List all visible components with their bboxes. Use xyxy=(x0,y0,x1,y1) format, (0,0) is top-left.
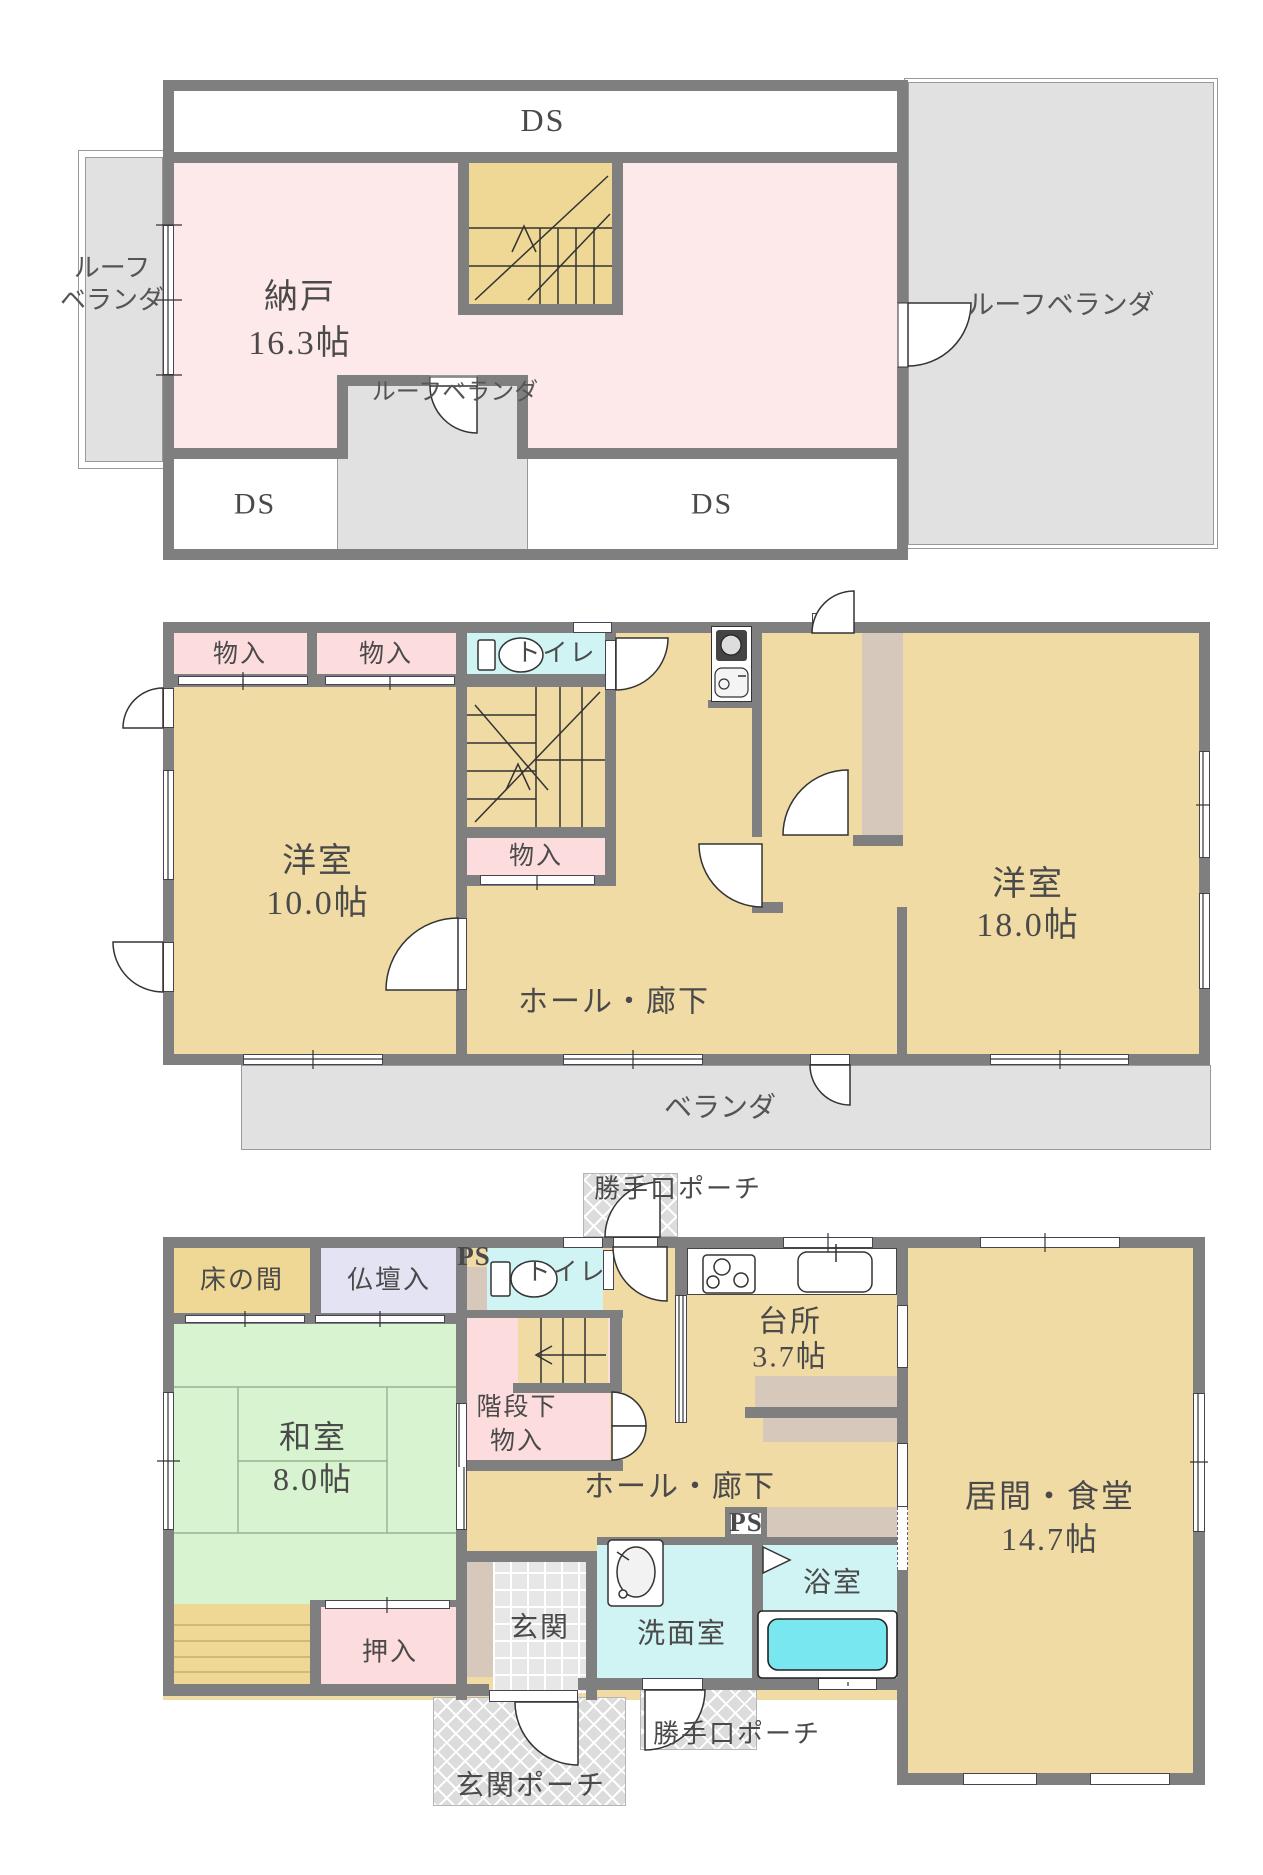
stairs-1f xyxy=(518,1318,608,1383)
bath-label: 浴室 xyxy=(803,1568,863,1597)
wall xyxy=(456,633,467,1054)
sliding-door xyxy=(325,676,455,685)
duct-space-top-label: DS xyxy=(521,104,566,138)
senmen-room xyxy=(597,1545,752,1678)
shoe-cabinet xyxy=(467,1562,493,1677)
wall xyxy=(752,1545,763,1678)
opening xyxy=(897,1305,908,1368)
opening-dashed xyxy=(897,1507,908,1570)
hall-1f-label: ホール・廊下 xyxy=(584,1471,776,1503)
sliding-door xyxy=(185,1315,305,1323)
veranda-2f-label: ベランダ xyxy=(664,1092,776,1121)
roof-veranda-middle-label: ルーフベランダ xyxy=(372,379,539,404)
toilet-1f-label: トイレ xyxy=(525,1260,606,1286)
window xyxy=(573,622,612,633)
wall xyxy=(745,1407,908,1418)
door-leaf xyxy=(163,942,174,992)
window xyxy=(1193,1393,1205,1532)
nando-size-label: 16.3帖 xyxy=(248,326,352,362)
wall xyxy=(163,152,908,163)
door-leaf xyxy=(752,844,762,907)
counter-band-c xyxy=(767,1507,898,1540)
room18-label: 洋室 xyxy=(992,867,1064,903)
stair-closet-label-line1: 階段下 xyxy=(476,1395,557,1421)
window xyxy=(990,1054,1129,1065)
window xyxy=(1199,751,1210,858)
ps1-label: PS xyxy=(457,1242,491,1270)
wall xyxy=(467,1551,597,1562)
wall xyxy=(307,633,317,674)
ps1-shaft-fill xyxy=(466,1267,487,1310)
closet-2f-2-label: 物入 xyxy=(359,642,413,668)
wall xyxy=(513,1383,612,1393)
washitsu-size-label: 8.0帖 xyxy=(273,1463,353,1497)
wall xyxy=(897,80,908,303)
kitchen-label: 台所 xyxy=(758,1306,822,1338)
tokonoma-label: 床の間 xyxy=(200,1266,284,1293)
kitchen-counter xyxy=(687,1248,897,1295)
genkan-label: 玄関 xyxy=(510,1613,570,1642)
toilet-2f-label: トイレ xyxy=(515,641,596,667)
wall xyxy=(897,367,908,560)
wall xyxy=(310,1604,321,1696)
wall xyxy=(163,1684,489,1696)
window xyxy=(963,1773,1037,1785)
wall xyxy=(310,1248,321,1313)
counter-band-b xyxy=(763,1418,898,1442)
kitchenette-2f xyxy=(711,626,752,702)
wall xyxy=(456,1310,623,1318)
wall xyxy=(612,163,623,315)
door-leaf xyxy=(613,1237,658,1248)
roof-veranda-right-label: ルーフベランダ xyxy=(967,291,1154,319)
hall-2f-label: ホール・廊下 xyxy=(518,986,710,1018)
sliding-door xyxy=(456,1403,467,1530)
front-porch-label: 玄関ポーチ xyxy=(456,1771,606,1800)
window xyxy=(1199,893,1210,989)
wall xyxy=(897,907,907,1054)
window xyxy=(563,1237,603,1248)
sliding-door xyxy=(178,676,308,685)
wall xyxy=(163,80,908,91)
wall xyxy=(163,622,1210,633)
door-leaf xyxy=(605,640,616,690)
stair-closet-label-line2: 物入 xyxy=(490,1429,544,1455)
door-leaf xyxy=(163,688,174,728)
room10-label: 洋室 xyxy=(282,844,354,880)
wall xyxy=(163,448,348,459)
sliding-door xyxy=(325,1600,450,1609)
floor-plan-canvas: DS 納戸 16.3帖 ルーフ ベランダ ルーフベランダ ルーフベランダ DS … xyxy=(0,0,1263,1875)
nando-label: 納戸 xyxy=(264,280,336,316)
wall xyxy=(610,1318,622,1392)
window xyxy=(563,1054,703,1065)
window xyxy=(163,225,174,375)
duct-space-left-label: DS xyxy=(234,488,276,520)
roof-veranda-left-label-line2: ベランダ xyxy=(60,286,164,313)
door-leaf xyxy=(812,613,854,633)
washitsu-label: 和室 xyxy=(279,1421,347,1455)
closet-2f-3-label: 物入 xyxy=(509,844,563,870)
closet-2f-1-label: 物入 xyxy=(213,642,267,668)
duct-space-right-label: DS xyxy=(691,488,733,520)
wall xyxy=(337,375,348,459)
window xyxy=(163,1392,174,1530)
window xyxy=(243,1054,383,1065)
door-leaf xyxy=(642,1678,703,1690)
wall xyxy=(458,163,469,315)
window xyxy=(783,1237,873,1248)
wall xyxy=(458,304,623,315)
room10-size-label: 10.0帖 xyxy=(266,886,370,922)
wall xyxy=(752,633,762,837)
senmen-label: 洗面室 xyxy=(637,1619,727,1648)
living-size-label: 14.7帖 xyxy=(1001,1523,1099,1557)
back-porch-top-label: 勝手口ポーチ xyxy=(594,1175,762,1202)
wall xyxy=(853,835,903,846)
sliding-door xyxy=(480,875,595,885)
living-label: 居間・食堂 xyxy=(965,1480,1135,1514)
wall xyxy=(163,549,908,560)
sliding-door xyxy=(315,1315,445,1323)
back-porch-bottom-label: 勝手口ポーチ xyxy=(653,1720,821,1747)
window xyxy=(163,770,174,880)
door-leaf xyxy=(810,1054,850,1065)
opening xyxy=(897,1443,908,1507)
wall xyxy=(456,827,616,838)
roof-veranda-left-label-line1: ルーフ xyxy=(74,254,150,281)
ps2-label: PS xyxy=(729,1508,763,1536)
window xyxy=(980,1237,1120,1248)
counter-band-a xyxy=(755,1376,898,1407)
wall xyxy=(517,448,908,459)
wall xyxy=(586,1551,597,1700)
window xyxy=(1090,1773,1170,1785)
room18-size-label: 18.0帖 xyxy=(976,908,1080,944)
window xyxy=(818,1678,877,1690)
door-leaf xyxy=(456,918,467,990)
engawa xyxy=(174,1604,310,1688)
kitchen-size-label: 3.7帖 xyxy=(752,1341,828,1373)
butsudan-label: 仏壇入 xyxy=(347,1266,431,1293)
oshiire-label: 押入 xyxy=(362,1638,418,1665)
door-leaf xyxy=(489,1690,578,1702)
wall xyxy=(675,1248,687,1295)
sliding-door xyxy=(675,1295,687,1423)
